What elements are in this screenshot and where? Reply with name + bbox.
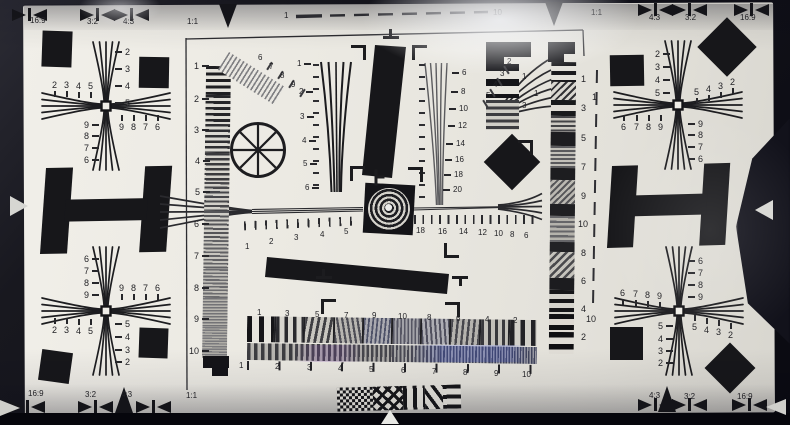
aspect-ratio-label: 16:9 (28, 390, 44, 398)
diagonal-stripes (425, 385, 444, 409)
scale-label: 8 (510, 231, 514, 239)
scale-label: 4 (658, 335, 663, 344)
scale-label: 8 (646, 123, 651, 132)
pattern-segment (422, 318, 452, 344)
pattern-segment (305, 317, 335, 343)
white-triangle-left-icon (766, 399, 786, 415)
triangle-left-icon (755, 4, 769, 16)
zone-plate-frame (363, 183, 416, 236)
black-square-bl-inner (138, 328, 168, 359)
tick-column-left-wedge (313, 64, 319, 190)
scale-label: 8 (131, 123, 136, 132)
scale-label: 4 (655, 76, 660, 85)
black-square-br-inner (610, 327, 643, 360)
scale-label: 6 (84, 255, 89, 264)
black-square-bl-outer (38, 349, 73, 384)
scale-label: 6 (155, 284, 160, 293)
aspect-ratio-label: 3:2 (85, 391, 96, 399)
pattern-segment (549, 252, 574, 278)
scale-label: 3 (500, 70, 504, 78)
scale-label: 10 (586, 315, 596, 324)
scale-label: 3 (658, 347, 663, 356)
pattern-segment (551, 62, 576, 82)
pattern-segment (550, 180, 575, 204)
scale-label: 7 (432, 368, 436, 376)
left-frequency-ruler-strip (202, 66, 231, 358)
pattern-segment (550, 204, 575, 216)
aspect-ratio-label: 3:2 (684, 393, 695, 401)
scale-label: 2 (275, 363, 279, 371)
white-triangle-left-icon (755, 200, 773, 220)
scale-label: 2 (581, 333, 586, 342)
scale-label: 4 (320, 231, 324, 239)
aspect-ratio-label: 4:3 (121, 391, 132, 399)
scale-label: 16 (438, 228, 447, 236)
horizontal-slant-bar (265, 257, 449, 294)
aspect-ratio-label: 1:1 (591, 9, 602, 17)
scale-label: 4 (302, 137, 306, 145)
registration-mark (350, 166, 365, 181)
scale-label: 5 (658, 322, 663, 331)
scale-label: 2 (728, 331, 733, 340)
scale-label: 9 (119, 123, 124, 132)
fiducial-tee-block (486, 42, 531, 57)
pattern-segment (549, 332, 574, 354)
registration-tee-mark (383, 36, 399, 39)
scale-label: 6 (698, 257, 703, 266)
photo-of-iso12233-test-chart: 16:93:24:31:11:14:33:216:9 16:93:24:31:1… (0, 0, 790, 425)
registration-tee-mark (452, 276, 468, 279)
scale-label: 5 (369, 366, 373, 374)
pattern-segment (202, 298, 227, 327)
scale-label: 14 (456, 140, 465, 148)
scale-label: 4 (338, 365, 342, 373)
scale-label: 3 (716, 328, 721, 337)
scale-label: 1 (592, 93, 597, 102)
black-square-tl-outer (41, 30, 72, 67)
triangle-right-icon (638, 399, 652, 411)
scale-label: 3 (655, 63, 660, 72)
scale-label: 2 (730, 78, 735, 87)
scale-label: 8 (84, 132, 89, 141)
scale-label: 3 (64, 326, 69, 335)
triangle-down-icon (219, 4, 237, 28)
scale-label: 6 (258, 54, 262, 62)
pattern-segment (550, 168, 575, 180)
pattern-segment (295, 344, 344, 362)
scale-label: 10 (459, 105, 468, 113)
scale-label: 4 (704, 326, 709, 335)
white-triangle-up-icon (381, 410, 399, 424)
pattern-segment (550, 146, 575, 168)
scale-label: 6 (620, 289, 625, 298)
scale-label: 7 (84, 144, 89, 153)
pattern-segment (549, 314, 574, 332)
registration-mark (444, 243, 459, 258)
scale-label: 2 (655, 50, 660, 59)
scale-label: 12 (458, 122, 467, 130)
pattern-segment (364, 318, 394, 344)
scale-label: 8 (581, 249, 586, 258)
pattern-segment (204, 182, 229, 211)
registration-mark (321, 299, 336, 314)
scale-label: 7 (84, 267, 89, 276)
scale-label: 10 (189, 347, 199, 356)
black-square-tr-inner (610, 55, 645, 87)
scale-label: 1 (581, 75, 586, 84)
pattern-segment (551, 132, 576, 146)
triangle-left-icon (157, 401, 171, 413)
vertical-wedge-right (425, 63, 447, 205)
top-ruler-end-label: 10 (493, 9, 502, 17)
white-triangle-right-icon (10, 196, 28, 216)
scale-label: 3 (581, 104, 586, 113)
scale-label: 3 (307, 364, 311, 372)
triangle-left-icon (99, 401, 113, 413)
scale-label: 14 (459, 228, 468, 236)
scale-label: 9 (657, 292, 662, 301)
scale-label: 5 (88, 82, 93, 91)
pattern-segment (551, 100, 576, 116)
scale-label: 6 (194, 220, 199, 229)
aspect-ratio-label: 16:9 (30, 17, 46, 25)
aspect-ratio-label: 1:1 (187, 18, 198, 26)
triangle-left-icon (659, 4, 673, 16)
scale-label: 3 (718, 82, 723, 91)
scale-label: 5 (581, 134, 586, 143)
black-square-tl-inner (139, 57, 170, 89)
scale-label: 9 (119, 284, 124, 293)
triangle-right-icon (12, 9, 26, 21)
scale-label: 16 (455, 156, 464, 164)
scale-label: 6 (462, 69, 466, 77)
aspect-marker-bowtie (136, 400, 171, 413)
scale-label: 10 (522, 371, 531, 379)
scale-label: 7 (634, 123, 639, 132)
pattern-segment (205, 95, 230, 124)
scale-label: 5 (344, 228, 348, 236)
aspect-ratio-label: 4:3 (649, 14, 660, 22)
scale-label: 8 (645, 291, 650, 300)
scale-label: 7 (194, 252, 199, 261)
scale-label: 9 (494, 370, 498, 378)
sweep-segments-band (247, 316, 537, 346)
scale-label: 3 (64, 81, 69, 90)
scale-label: 10 (578, 220, 588, 229)
scale-label: 5 (88, 327, 93, 336)
left-strip-end-block-stub (212, 367, 228, 376)
aspect-ratio-label: 1:1 (186, 392, 197, 400)
scale-label: 7 (143, 284, 148, 293)
aspect-ratio-label: 16:9 (740, 14, 756, 22)
scale-label: 6 (401, 367, 405, 375)
scale-label: 4 (195, 157, 200, 166)
scale-label: 5 (655, 89, 660, 98)
scale-label: 3 (125, 346, 130, 355)
scale-label: 10 (494, 230, 503, 238)
scale-label: 9 (698, 120, 703, 129)
scale-label: 9 (372, 312, 376, 320)
pattern-segment (203, 269, 228, 298)
triangle-right-icon (136, 401, 150, 413)
triangle-left-icon (135, 9, 149, 21)
scale-label: 18 (416, 227, 425, 235)
pattern-segment (247, 316, 277, 342)
scale-label: 12 (478, 229, 487, 237)
scale-label: 6 (621, 123, 626, 132)
scale-label: 4 (76, 327, 81, 336)
scale-label: 1 (534, 90, 538, 98)
scale-label: 5 (486, 92, 490, 100)
pattern-segment (202, 327, 227, 358)
scale-label: 5 (303, 160, 307, 168)
scale-label: 6 (84, 156, 89, 165)
pattern-segment (393, 318, 423, 344)
scale-label: 6 (305, 184, 309, 192)
scale-label: 2 (52, 81, 57, 90)
scale-label: 6 (698, 155, 703, 164)
triangle-down-icon (545, 2, 563, 26)
aspect-marker-bowtie (78, 400, 113, 413)
pattern-segment (440, 346, 489, 364)
scale-label: 1 (257, 309, 261, 317)
pattern-segment (204, 153, 229, 182)
pattern-segment (276, 316, 306, 342)
scale-label: 1 (245, 243, 249, 251)
scale-label: 7 (698, 269, 703, 278)
scale-label: 6 (581, 277, 586, 286)
scale-label: 2 (507, 58, 511, 66)
scale-label: 2 (125, 48, 130, 57)
scale-label: 5 (694, 88, 699, 97)
scale-label: 8 (463, 369, 467, 377)
pattern-segment (344, 344, 393, 362)
aspect-ratio-label: 16:9 (737, 393, 753, 401)
center-ruler-ticks-right (414, 215, 534, 224)
scale-label: 7 (633, 290, 638, 299)
horizontal-bars-fine (486, 100, 519, 130)
scale-label: 3 (294, 234, 298, 242)
scale-label: 9 (698, 293, 703, 302)
aspect-ratio-label: 4:3 (649, 392, 660, 400)
scale-label: 7 (269, 63, 273, 71)
scale-label: 4 (581, 305, 586, 314)
top-dashed-ruler (296, 12, 488, 17)
scale-label: 20 (453, 186, 462, 194)
scale-label: 1 (522, 73, 526, 81)
checkerboard-diamond (373, 386, 404, 411)
right-frequency-strip (549, 62, 577, 354)
triangle-left-icon (753, 399, 767, 411)
scale-label: 4 (493, 81, 497, 89)
scale-label: 6 (155, 123, 160, 132)
scale-label: 2 (513, 317, 517, 325)
scale-label: 4 (76, 82, 81, 91)
pattern-segment (551, 116, 576, 132)
scale-label: 9 (194, 315, 199, 324)
scale-label: 6 (456, 315, 460, 323)
registration-tee-mark (375, 170, 378, 186)
triangle-left-icon (31, 401, 45, 413)
marker-tick (26, 400, 29, 413)
scale-label: 2 (658, 359, 663, 368)
pattern-segment (247, 343, 296, 361)
registration-mark (412, 45, 427, 60)
triangle-left-icon (101, 9, 115, 21)
scale-label: 4 (125, 333, 130, 342)
scale-label: 8 (461, 88, 465, 96)
pattern-segment (550, 216, 575, 242)
aspect-ratio-label: 3:2 (87, 18, 98, 26)
marker-tick (94, 400, 97, 413)
h-bar-right (607, 163, 730, 248)
scale-label: 5 (125, 320, 130, 329)
scale-label: 7 (344, 312, 348, 320)
scale-label: 9 (658, 123, 663, 132)
scale-label: 5 (195, 188, 200, 197)
scale-label: 4 (125, 82, 130, 91)
aspect-ratio-label: 3:2 (685, 14, 696, 22)
h-bar-left (40, 166, 172, 254)
scale-label: 1 (297, 60, 301, 68)
vertical-wedge-left (321, 62, 351, 192)
scale-label: 3 (125, 65, 130, 74)
scale-label: 9 (581, 192, 586, 201)
marker-tick (152, 400, 155, 413)
scale-label: 2 (194, 95, 199, 104)
scale-label: 10 (398, 313, 407, 321)
registration-mark (408, 167, 423, 182)
scale-label: 3 (194, 126, 199, 135)
scale-label: 4 (485, 316, 489, 324)
pattern-segment (204, 211, 229, 240)
right-strip-top-block-stub (548, 53, 564, 62)
scale-label: 1 (239, 362, 243, 370)
scale-label: 9 (84, 291, 89, 300)
scale-label: 8 (280, 72, 284, 80)
scale-label: 7 (698, 143, 703, 152)
checkerboard-fine (337, 387, 374, 412)
vertical-slant-bar (362, 45, 406, 178)
scale-label: 4 (706, 85, 711, 94)
scale-label: 2 (52, 326, 57, 335)
white-triangle-right-icon (0, 400, 20, 416)
horizontal-stripes (443, 384, 462, 408)
bottom-pattern-badge (337, 384, 462, 411)
registration-tee-mark (316, 276, 332, 279)
pattern-segment (334, 317, 364, 343)
vertical-bars (403, 385, 426, 410)
scale-label: 8 (84, 279, 89, 288)
scale-label: 8 (427, 314, 431, 322)
scale-label: 3 (285, 310, 289, 318)
scale-label: 3 (522, 102, 526, 110)
scale-label: 9 (84, 121, 89, 130)
scale-label: 8 (131, 284, 136, 293)
scale-label: 9 (291, 81, 295, 89)
pattern-segment (551, 82, 576, 100)
scale-label: 2 (269, 238, 273, 246)
registration-mark (351, 45, 366, 60)
scale-label: 8 (698, 131, 703, 140)
pattern-segment (489, 346, 538, 364)
right-dashed-line (593, 70, 597, 306)
registration-mark (518, 140, 533, 155)
pattern-segment (549, 290, 574, 314)
top-ruler-start-label: 1 (284, 12, 288, 20)
scale-label: 1 (194, 62, 199, 71)
aspect-ratio-label: 4:3 (123, 18, 134, 26)
pattern-segment (549, 278, 574, 290)
scale-label: 3 (300, 113, 304, 121)
scale-label: 6 (524, 232, 528, 240)
scale-label: 5 (315, 311, 319, 319)
pattern-segment (550, 242, 575, 252)
triangle-right-icon (672, 4, 686, 16)
scale-label: 18 (454, 171, 463, 179)
triangle-right-icon (78, 401, 92, 413)
scale-label: 8 (194, 284, 199, 293)
scale-label: 5 (125, 99, 130, 108)
scale-label: 7 (581, 163, 586, 172)
scale-label: 5 (692, 323, 697, 332)
scale-label: 7 (143, 123, 148, 132)
spoked-circle (232, 124, 285, 177)
pattern-segment (392, 345, 441, 363)
scale-label: 2 (125, 358, 130, 367)
scale-label: 8 (698, 281, 703, 290)
